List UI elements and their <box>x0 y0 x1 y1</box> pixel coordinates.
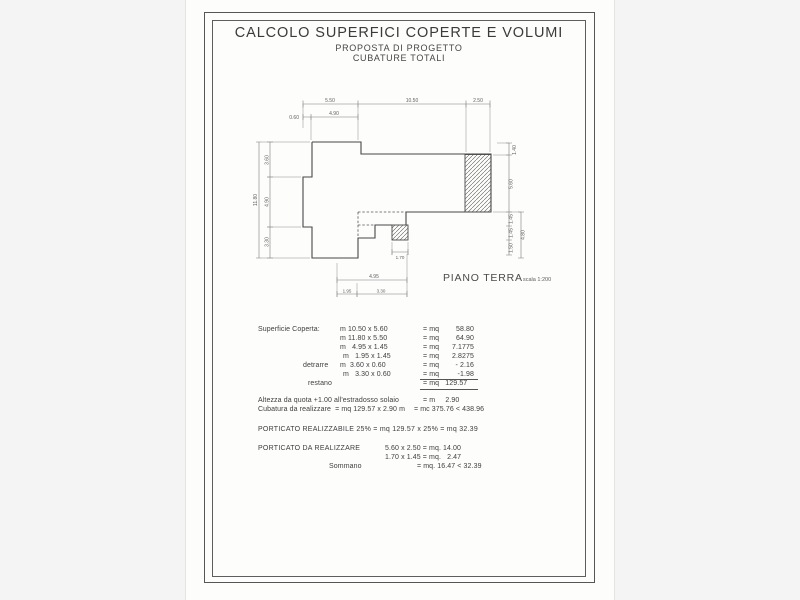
dim-label: 1.50 <box>509 243 515 253</box>
calc-value: 64.90 <box>428 335 474 343</box>
calc-formula: m 3.30 x 0.60 <box>343 371 391 379</box>
calc-formula: m 10.50 x 5.60 <box>340 326 388 334</box>
dim-label: 4.90 <box>329 111 339 117</box>
cubatura-result: = mc 375.76 < 438.96 <box>414 406 484 414</box>
altezza-result: = m 2.90 <box>423 397 459 405</box>
calc-value: -1.98 <box>428 371 474 379</box>
sommano-label: Sommano <box>329 463 362 471</box>
calc-value: 2.8275 <box>428 353 474 361</box>
small-porticato-hatched-area <box>392 225 408 240</box>
dim-label: 5.60 <box>509 179 515 189</box>
plan-scale: scala 1:200 <box>523 277 551 283</box>
dim-label: 1.45 <box>509 214 515 224</box>
calc-value: 7.1775 <box>428 344 474 352</box>
dim-label: 4.90 <box>265 197 271 207</box>
sommano-value: = mq. 16.47 < 32.39 <box>417 463 482 471</box>
dim-label: 3.60 <box>265 155 271 165</box>
calc-prefix: detrarre <box>303 362 328 370</box>
calc-value: 58.80 <box>428 326 474 334</box>
scanned-document-screen: CALCOLO SUPERFICI COPERTE E VOLUMI PROPO… <box>0 0 800 600</box>
dim-label: 1.70 <box>396 255 405 260</box>
porticato-label: PORTICATO DA REALIZZARE <box>258 445 360 453</box>
dim-label: 1.95 <box>343 289 352 294</box>
plan-name: PIANO TERRA <box>443 272 523 284</box>
cubatura-label: Cubatura da realizzare = mq 129.57 x 2.9… <box>258 406 405 414</box>
porticato-row: 5.60 x 2.50 = mq. 14.00 <box>385 445 461 453</box>
dim-label: 5.50 <box>325 98 335 104</box>
surface-label: Superficie Coperta: <box>258 326 320 334</box>
calc-prefix: restano <box>308 380 332 388</box>
floor-plan-drawing: 5.50 10.50 2.50 0.60 4.90 3.60 11.80 4.9… <box>0 0 800 600</box>
dim-label: 4.80 <box>521 230 527 240</box>
calc-total: = mq 129.57 <box>423 380 467 388</box>
sum-rule <box>420 389 478 390</box>
dim-label: 3.30 <box>265 237 271 247</box>
dim-label: 3.30 <box>377 289 386 294</box>
dim-label: 4.95 <box>369 274 379 280</box>
porticato-row: 1.70 x 1.45 = mq. 2.47 <box>385 454 461 462</box>
dim-label: 11.80 <box>253 194 259 206</box>
porticato-hatched-area <box>465 155 491 213</box>
porticato-realizzabile-line: PORTICATO REALIZZABILE 25% = mq 129.57 x… <box>258 426 478 434</box>
calc-formula: m 11.80 x 5.50 <box>340 335 387 343</box>
dim-label: 10.50 <box>406 98 419 104</box>
calc-formula: m 4.95 x 1.45 <box>340 344 388 352</box>
calc-formula: m 1.95 x 1.45 <box>343 353 391 361</box>
building-outline <box>303 142 491 258</box>
calc-value: - 2.16 <box>428 362 474 370</box>
dim-label: 2.50 <box>473 98 483 104</box>
dim-label: 0.60 <box>289 115 299 121</box>
dim-label: 1.40 <box>512 145 518 155</box>
altezza-label: Altezza da quota +1.00 all'estradosso so… <box>258 397 399 405</box>
calc-formula: m 3.60 x 0.60 <box>340 362 386 370</box>
dim-label: 1.45 <box>509 228 515 238</box>
